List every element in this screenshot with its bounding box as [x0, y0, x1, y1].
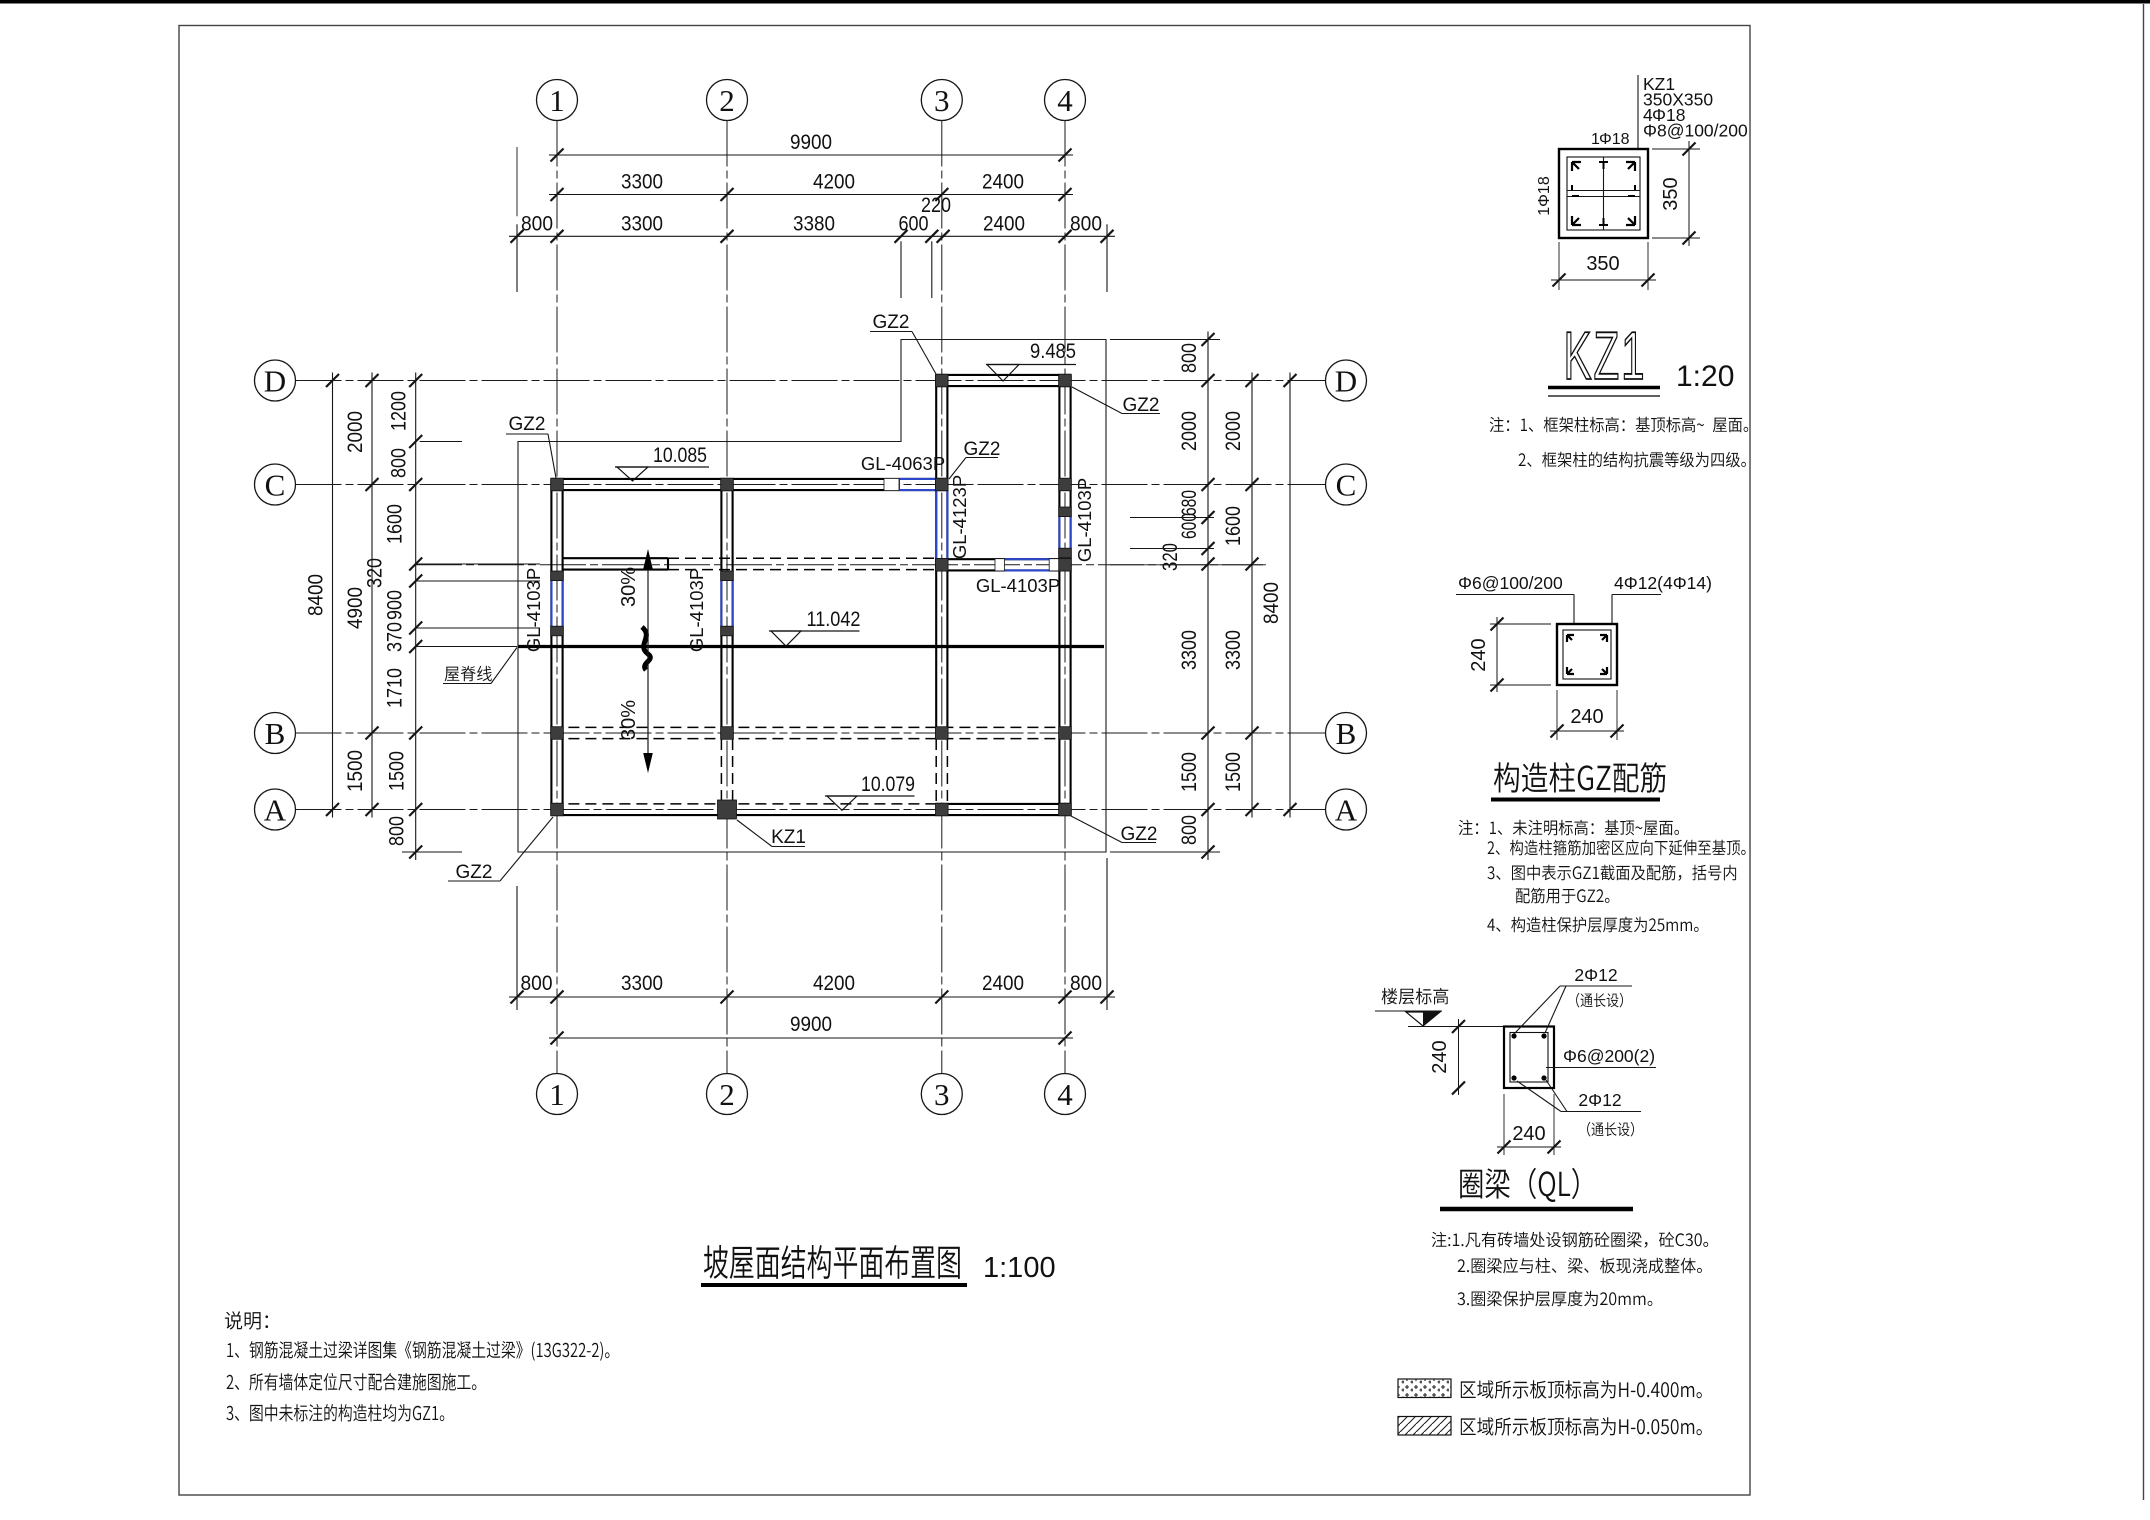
svg-text:800: 800 [1070, 211, 1102, 235]
svg-text:370: 370 [383, 622, 407, 652]
svg-text:A: A [1335, 793, 1358, 828]
svg-text:800: 800 [385, 816, 409, 846]
svg-text:800: 800 [1177, 343, 1201, 373]
svg-text:2Φ12: 2Φ12 [1574, 965, 1617, 985]
svg-text:Φ6@200(2): Φ6@200(2) [1563, 1046, 1655, 1066]
svg-text:2: 2 [719, 1077, 735, 1112]
svg-text:1500: 1500 [385, 751, 409, 791]
svg-text:9900: 9900 [790, 1012, 832, 1036]
svg-text:8400: 8400 [304, 574, 328, 616]
svg-text:4: 4 [1057, 1077, 1073, 1112]
svg-text:9.485: 9.485 [1030, 339, 1076, 363]
svg-text:2000: 2000 [1221, 411, 1245, 451]
svg-text:10.079: 10.079 [861, 772, 915, 796]
svg-text:Φ6@100/200: Φ6@100/200 [1458, 573, 1563, 593]
svg-text:240: 240 [1429, 1040, 1451, 1073]
svg-text:2400: 2400 [982, 170, 1024, 194]
svg-text:240: 240 [1570, 706, 1603, 728]
svg-text:1600: 1600 [1221, 506, 1245, 546]
svg-text:2Φ12: 2Φ12 [1578, 1090, 1621, 1110]
svg-text:D: D [1335, 364, 1357, 399]
svg-text:800: 800 [521, 211, 553, 235]
svg-text:Φ18: Φ18 [1599, 131, 1630, 148]
svg-text:1:20: 1:20 [1676, 360, 1734, 393]
svg-text:Φ8@100/200: Φ8@100/200 [1643, 121, 1748, 141]
svg-text:3300: 3300 [621, 211, 663, 235]
svg-text:350: 350 [1586, 253, 1619, 275]
svg-text:1: 1 [549, 83, 565, 118]
svg-text:4200: 4200 [813, 170, 855, 194]
svg-text:1500: 1500 [343, 750, 367, 792]
svg-text:3300: 3300 [621, 971, 663, 995]
svg-text:680: 680 [1177, 490, 1201, 516]
svg-text:1: 1 [549, 1077, 565, 1112]
svg-text:800: 800 [387, 448, 411, 478]
svg-text:GL-4103P: GL-4103P [686, 568, 707, 652]
svg-text:320: 320 [363, 558, 387, 588]
svg-text:1200: 1200 [387, 391, 411, 431]
svg-text:KZ1: KZ1 [771, 827, 806, 848]
svg-text:220: 220 [921, 193, 951, 217]
svg-text:4900: 4900 [343, 587, 367, 629]
svg-text:3300: 3300 [1177, 630, 1201, 670]
svg-text:3300: 3300 [1221, 630, 1245, 670]
svg-text:C: C [265, 468, 286, 503]
svg-text:320: 320 [1158, 543, 1182, 571]
svg-text:3: 3 [934, 83, 950, 118]
svg-text:2400: 2400 [982, 971, 1024, 995]
svg-text:3: 3 [934, 1077, 950, 1112]
svg-text:1710: 1710 [383, 668, 407, 708]
svg-text:800: 800 [1177, 815, 1201, 845]
svg-text:900: 900 [383, 590, 407, 620]
svg-text:3300: 3300 [621, 170, 663, 194]
svg-text:10.085: 10.085 [653, 443, 707, 467]
svg-text:800: 800 [521, 971, 553, 995]
svg-text:4Φ12(4Φ14): 4Φ12(4Φ14) [1614, 573, 1712, 593]
svg-text:4200: 4200 [813, 971, 855, 995]
svg-text:1500: 1500 [1221, 752, 1245, 792]
svg-text:B: B [1336, 716, 1357, 751]
svg-text:B: B [265, 716, 286, 751]
svg-text:4: 4 [1057, 83, 1073, 118]
svg-text:1:100: 1:100 [983, 1252, 1056, 1284]
svg-text:C: C [1336, 468, 1357, 503]
svg-text:800: 800 [1070, 971, 1102, 995]
svg-text:3380: 3380 [793, 211, 835, 235]
svg-text:GL-4103P: GL-4103P [976, 575, 1060, 596]
svg-text:240: 240 [1468, 638, 1490, 671]
svg-text:D: D [264, 364, 286, 399]
svg-text:9900: 9900 [790, 130, 832, 154]
svg-text:2400: 2400 [983, 211, 1025, 235]
svg-text:1500: 1500 [1177, 752, 1201, 792]
svg-text:GZ2: GZ2 [456, 862, 493, 883]
svg-text:600: 600 [1177, 513, 1201, 539]
svg-text:KZ1: KZ1 [1564, 318, 1647, 394]
svg-text:GZ2: GZ2 [1121, 824, 1158, 845]
svg-text:GL-4103P: GL-4103P [523, 568, 544, 652]
svg-text:8400: 8400 [1259, 582, 1283, 624]
svg-text:2000: 2000 [343, 411, 367, 453]
svg-text:2: 2 [719, 83, 735, 118]
svg-text:GZ2: GZ2 [509, 414, 546, 435]
svg-text:GL-4063P: GL-4063P [861, 453, 945, 474]
svg-text:GL-4103P: GL-4103P [1074, 478, 1095, 562]
svg-text:GZ2: GZ2 [1123, 395, 1160, 416]
svg-text:GZ2: GZ2 [873, 312, 910, 333]
svg-text:GL-4123P: GL-4123P [949, 475, 970, 559]
svg-text:1Φ18: 1Φ18 [1536, 176, 1553, 216]
svg-text:GZ2: GZ2 [964, 439, 1001, 460]
svg-text:30%: 30% [618, 700, 640, 740]
svg-text:30%: 30% [618, 567, 640, 607]
svg-text:2000: 2000 [1177, 411, 1201, 451]
svg-text:A: A [264, 793, 287, 828]
svg-text:350: 350 [1660, 177, 1682, 210]
svg-text:240: 240 [1512, 1123, 1545, 1145]
svg-text:11.042: 11.042 [807, 607, 861, 631]
svg-text:1600: 1600 [383, 504, 407, 544]
